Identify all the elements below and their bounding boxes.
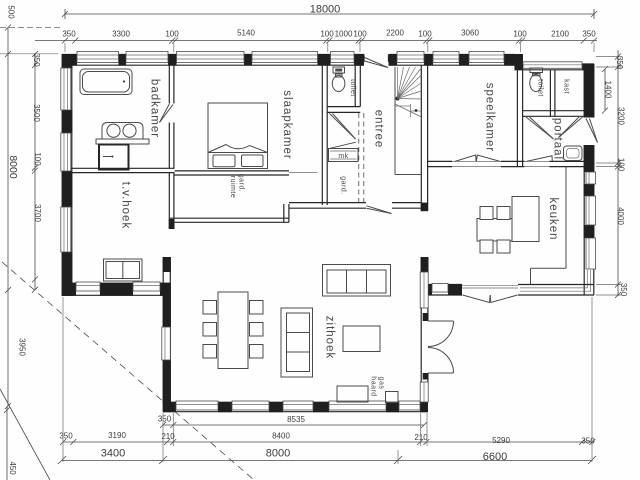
svg-text:8400: 8400	[272, 432, 290, 441]
svg-text:t.v.hoek: t.v.hoek	[120, 182, 132, 229]
svg-text:portaal: portaal	[552, 118, 564, 160]
svg-text:18000: 18000	[310, 4, 341, 16]
svg-text:350: 350	[32, 53, 41, 67]
svg-text:500: 500	[7, 5, 16, 19]
svg-text:1400: 1400	[604, 81, 613, 99]
svg-text:350: 350	[581, 437, 595, 446]
svg-text:3060: 3060	[461, 29, 479, 38]
svg-text:8000: 8000	[266, 448, 290, 460]
svg-text:badkamer: badkamer	[149, 79, 161, 138]
svg-text:2100: 2100	[551, 30, 569, 39]
svg-text:5290: 5290	[492, 436, 510, 445]
svg-text:350: 350	[615, 56, 624, 70]
svg-text:kast: kast	[563, 79, 570, 94]
svg-text:3700: 3700	[33, 204, 42, 222]
svg-text:gard.: gard.	[340, 176, 347, 194]
svg-text:slaapkamer: slaapkamer	[281, 90, 293, 159]
svg-text:100: 100	[418, 30, 432, 39]
svg-text:100: 100	[33, 152, 42, 166]
svg-text:350: 350	[59, 432, 73, 441]
svg-text:350: 350	[158, 415, 172, 424]
svg-text:3200: 3200	[617, 107, 626, 125]
svg-text:8000: 8000	[7, 155, 19, 179]
svg-text:350: 350	[582, 30, 596, 39]
svg-text:100: 100	[320, 30, 334, 39]
svg-text:3400: 3400	[101, 448, 125, 460]
svg-text:3950: 3950	[18, 338, 27, 356]
svg-text:zithoek: zithoek	[324, 316, 336, 359]
svg-text:entree: entree	[373, 110, 385, 149]
svg-text:100: 100	[617, 158, 626, 172]
svg-text:6600: 6600	[483, 451, 507, 463]
svg-text:speelkamer: speelkamer	[484, 83, 496, 152]
svg-text:3500: 3500	[32, 104, 41, 122]
svg-text:ruimte: ruimte	[229, 176, 236, 198]
svg-text:8535: 8535	[287, 415, 305, 424]
svg-text:keuken: keuken	[547, 197, 559, 240]
svg-text:350: 350	[619, 283, 628, 297]
svg-text:210: 210	[414, 433, 428, 442]
svg-text:4000: 4000	[616, 207, 625, 225]
svg-text:2200: 2200	[386, 29, 404, 38]
svg-text:3300: 3300	[112, 30, 130, 39]
svg-text:haard: haard	[370, 376, 377, 396]
svg-text:350: 350	[62, 30, 76, 39]
svg-text:5140: 5140	[237, 29, 255, 38]
svg-text:100: 100	[353, 30, 367, 39]
svg-text:450: 450	[8, 461, 17, 475]
svg-text:toilet: toilet	[349, 79, 356, 97]
svg-text:toilet: toilet	[537, 79, 544, 97]
svg-text:1000: 1000	[335, 30, 353, 39]
svg-text:gas: gas	[378, 377, 385, 390]
svg-text:gard.: gard.	[238, 174, 245, 192]
svg-text:3190: 3190	[108, 431, 126, 440]
svg-text:100: 100	[165, 30, 179, 39]
svg-text:100: 100	[513, 30, 527, 39]
svg-text:mk: mk	[338, 153, 348, 160]
